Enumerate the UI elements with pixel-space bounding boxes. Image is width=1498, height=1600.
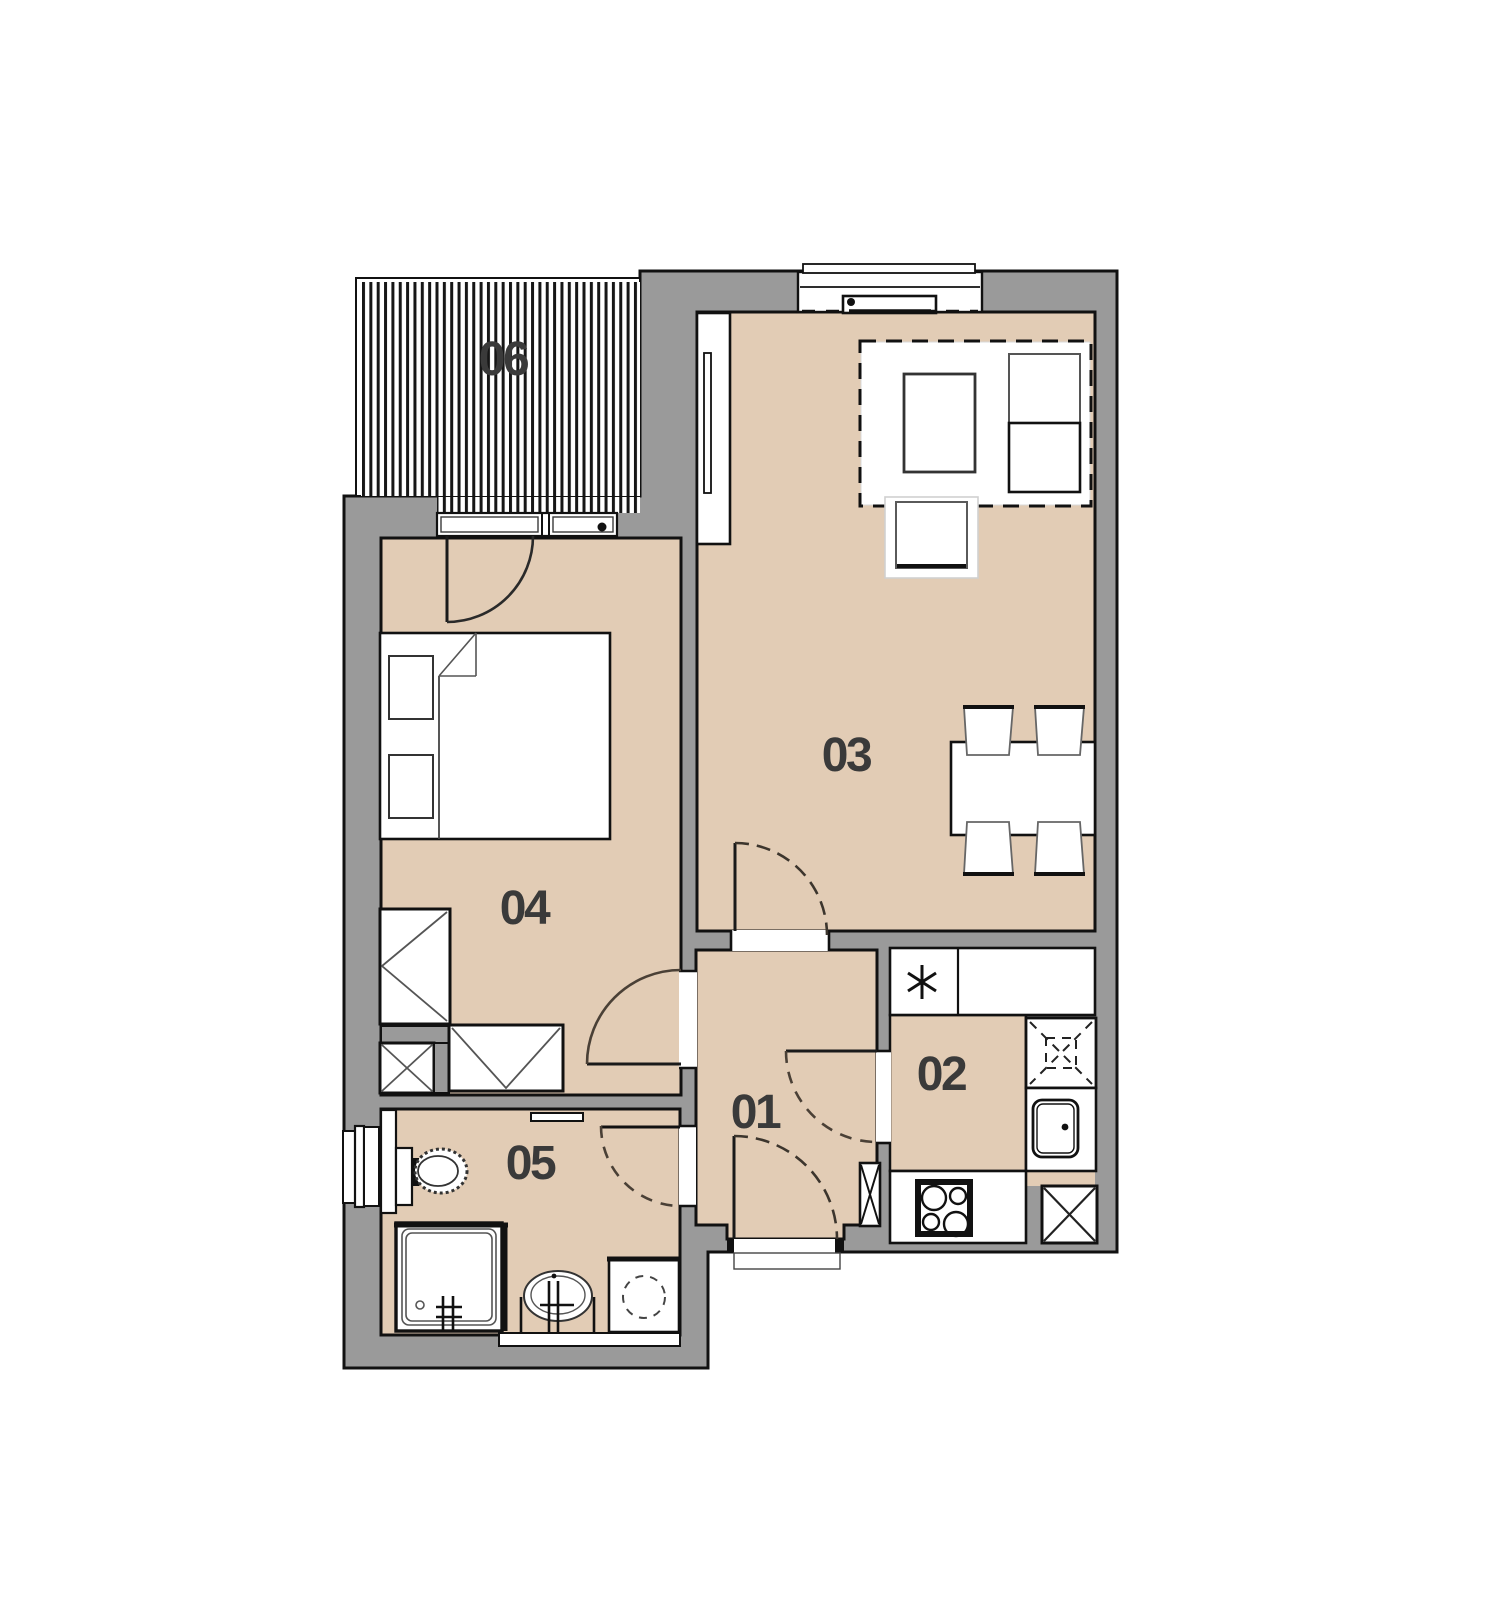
svg-text:04: 04 xyxy=(500,882,551,935)
svg-text:01: 01 xyxy=(731,1086,781,1139)
svg-text:02: 02 xyxy=(917,1048,966,1101)
svg-text:06: 06 xyxy=(479,333,528,386)
svg-text:05: 05 xyxy=(506,1137,556,1190)
svg-text:03: 03 xyxy=(822,729,871,782)
